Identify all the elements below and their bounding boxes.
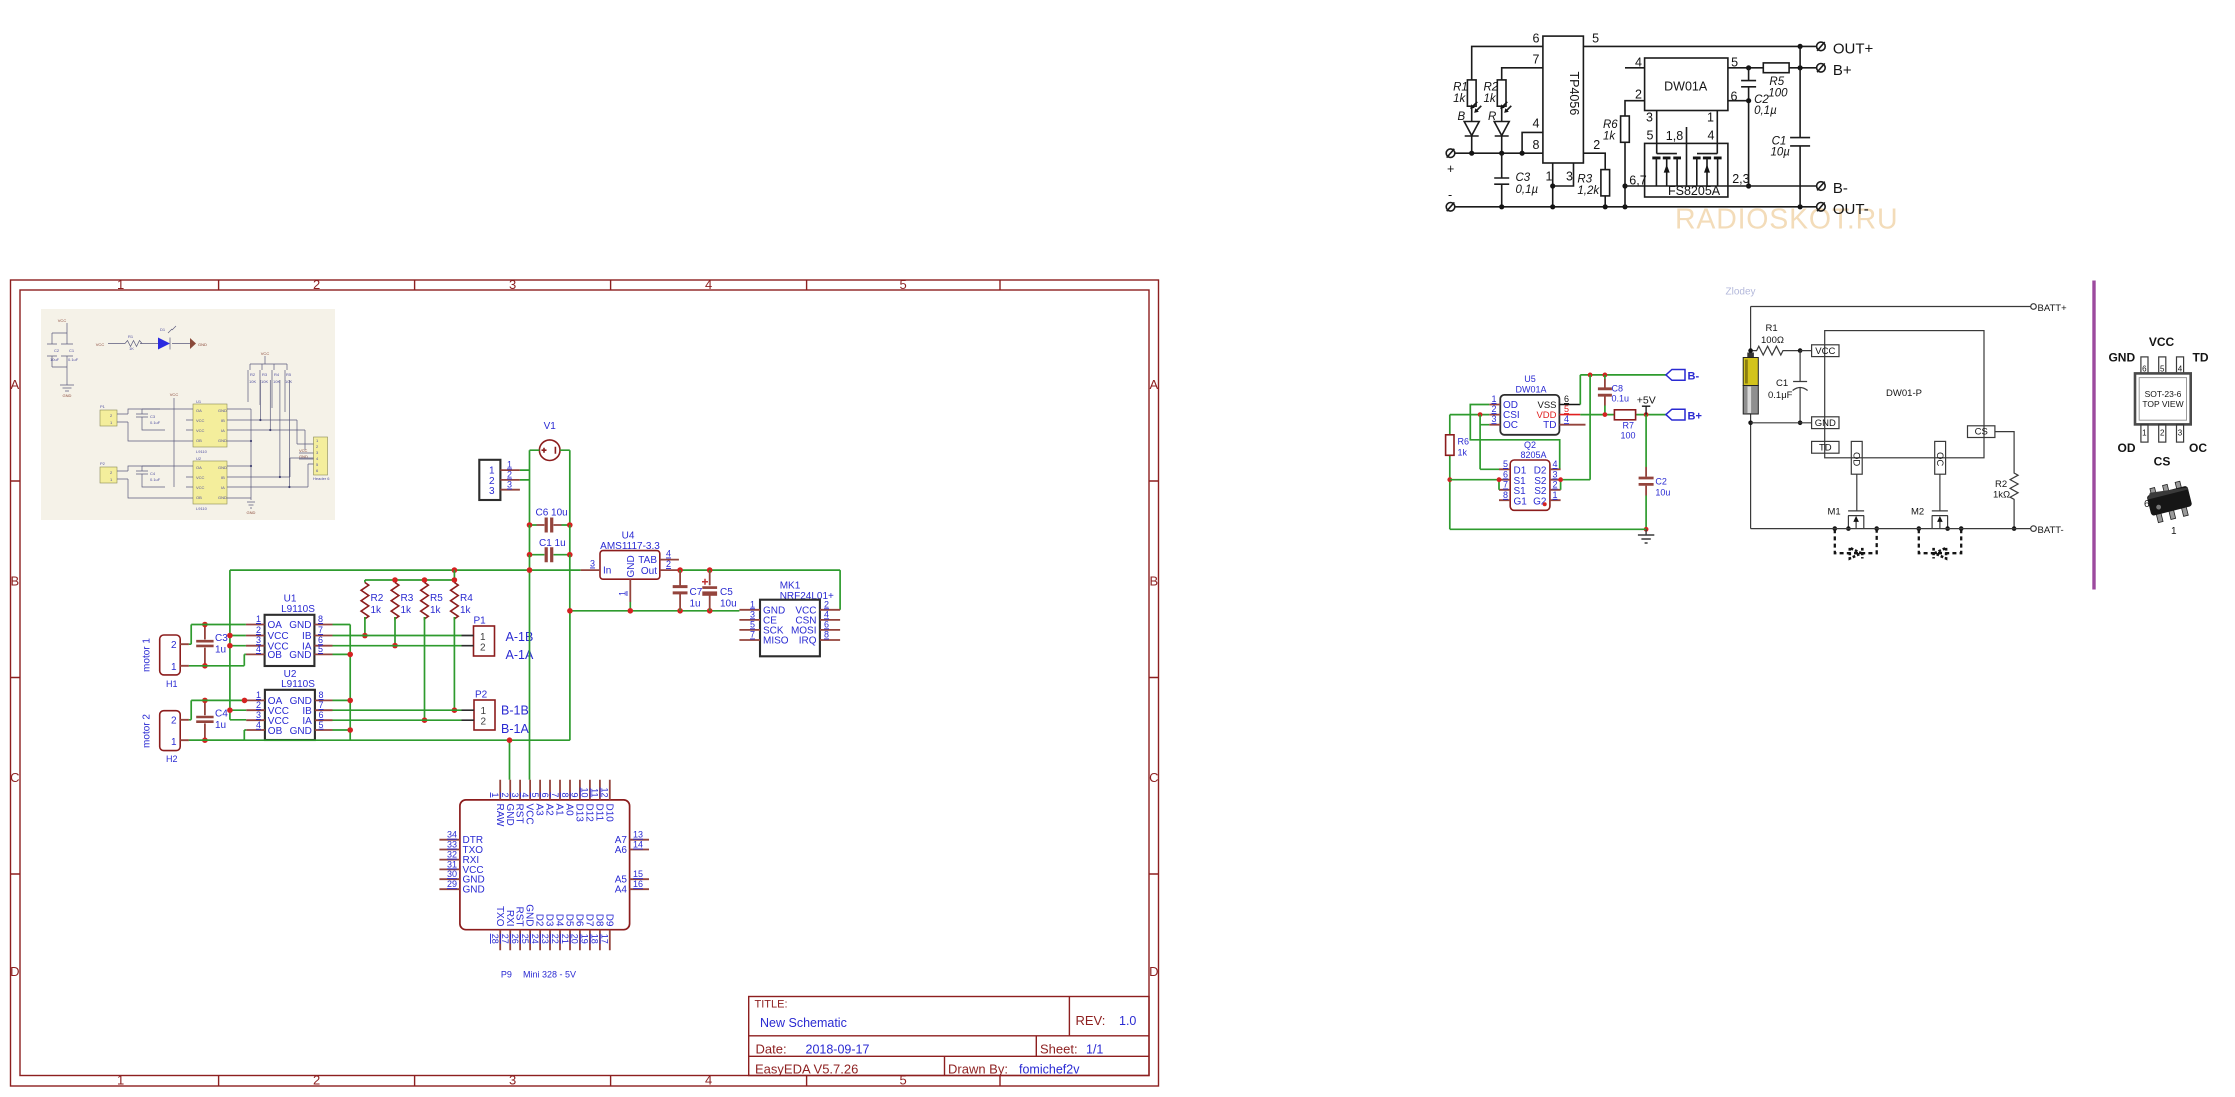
svg-text:+: + <box>1447 162 1454 176</box>
svg-text:U4: U4 <box>622 531 635 542</box>
svg-text:IA: IA <box>221 485 225 490</box>
svg-text:GND: GND <box>463 885 485 896</box>
svg-text:B: B <box>10 574 19 589</box>
svg-text:4: 4 <box>705 1073 712 1088</box>
svg-text:29: 29 <box>447 879 457 889</box>
svg-text:fomichef2v: fomichef2v <box>1019 1063 1080 1077</box>
svg-text:3: 3 <box>1491 414 1496 424</box>
svg-text:A3: A3 <box>534 804 545 817</box>
svg-text:5: 5 <box>1592 32 1599 46</box>
svg-text:1: 1 <box>256 614 261 624</box>
svg-text:6: 6 <box>319 710 324 720</box>
svg-text:1,8: 1,8 <box>1666 129 1683 143</box>
svg-text:RAW: RAW <box>494 804 505 828</box>
svg-text:20: 20 <box>570 934 580 944</box>
svg-text:BATT+: BATT+ <box>2038 303 2068 314</box>
svg-text:GND: GND <box>289 620 311 631</box>
svg-text:22: 22 <box>550 934 560 944</box>
svg-text:U2: U2 <box>196 456 202 461</box>
svg-text:A: A <box>10 377 19 392</box>
svg-text:R5: R5 <box>286 372 292 377</box>
svg-text:4: 4 <box>256 644 261 654</box>
svg-text:4: 4 <box>666 549 671 559</box>
svg-text:17: 17 <box>600 934 610 944</box>
svg-text:R3: R3 <box>262 372 268 377</box>
svg-text:New Schematic: New Schematic <box>760 1016 847 1030</box>
svg-text:3: 3 <box>509 277 516 292</box>
svg-text:1k: 1k <box>1453 93 1466 105</box>
svg-text:10: 10 <box>580 787 590 797</box>
svg-text:2: 2 <box>666 559 671 569</box>
svg-text:1,2k: 1,2k <box>1577 185 1600 197</box>
svg-text:OUT-: OUT- <box>1833 201 1869 218</box>
svg-text:A6: A6 <box>615 845 628 856</box>
svg-text:TAB: TAB <box>638 555 657 566</box>
svg-text:C6 10u: C6 10u <box>536 508 568 519</box>
svg-text:18: 18 <box>590 934 600 944</box>
svg-text:33: 33 <box>447 840 457 850</box>
svg-text:3: 3 <box>507 480 512 490</box>
svg-text:34: 34 <box>447 830 457 840</box>
svg-text:0.1u: 0.1u <box>1612 394 1630 404</box>
svg-text:CS: CS <box>1975 427 1988 438</box>
svg-text:Date:: Date: <box>756 1042 787 1057</box>
svg-text:5: 5 <box>319 720 324 730</box>
svg-text:100Ω: 100Ω <box>1761 335 1784 346</box>
svg-text:R4: R4 <box>460 593 473 604</box>
svg-text:RST: RST <box>514 804 525 824</box>
svg-text:VCC: VCC <box>2149 335 2175 349</box>
svg-text:C3: C3 <box>215 633 228 644</box>
svg-text:2: 2 <box>256 700 261 710</box>
svg-text:L9110S: L9110S <box>281 679 315 690</box>
svg-text:5: 5 <box>1647 128 1654 142</box>
svg-text:EasyEDA V5.7.26: EasyEDA V5.7.26 <box>755 1062 858 1077</box>
svg-text:P1: P1 <box>100 404 106 409</box>
svg-text:2018-09-17: 2018-09-17 <box>806 1043 870 1057</box>
svg-text:1k: 1k <box>1484 93 1497 105</box>
svg-text:C2: C2 <box>54 348 60 353</box>
svg-text:Q2: Q2 <box>1524 440 1536 450</box>
svg-text:1: 1 <box>117 1073 124 1088</box>
svg-text:REV:: REV: <box>1076 1013 1106 1028</box>
svg-text:D5: D5 <box>564 914 575 927</box>
svg-text:S2: S2 <box>1534 486 1547 497</box>
svg-text:VCC: VCC <box>58 318 67 323</box>
svg-text:D3: D3 <box>544 914 555 927</box>
svg-text:1/1: 1/1 <box>1086 1043 1103 1057</box>
svg-text:VCC: VCC <box>299 448 308 453</box>
svg-text:2,3: 2,3 <box>1732 172 1749 186</box>
svg-text:25: 25 <box>520 934 530 944</box>
svg-text:C1: C1 <box>1772 135 1787 147</box>
svg-text:C7: C7 <box>690 587 703 598</box>
svg-text:R3: R3 <box>1577 174 1592 186</box>
svg-text:2: 2 <box>507 470 512 480</box>
svg-text:6: 6 <box>540 792 550 797</box>
svg-text:TD: TD <box>1543 420 1556 431</box>
svg-text:2: 2 <box>1491 404 1496 414</box>
svg-text:3: 3 <box>750 609 755 619</box>
svg-text:GND: GND <box>218 465 227 470</box>
svg-text:D7: D7 <box>584 914 595 927</box>
svg-text:R5: R5 <box>1769 76 1784 88</box>
svg-text:OB: OB <box>196 495 202 500</box>
svg-text:R5: R5 <box>430 593 443 604</box>
svg-text:19: 19 <box>580 934 590 944</box>
svg-text:1: 1 <box>1553 490 1558 500</box>
svg-text:OD: OD <box>2118 441 2136 455</box>
svg-text:2: 2 <box>1635 88 1642 102</box>
svg-text:3: 3 <box>1646 111 1653 125</box>
svg-text:1k: 1k <box>371 605 383 616</box>
svg-text:D9: D9 <box>603 914 614 927</box>
svg-text:RXI: RXI <box>504 910 515 927</box>
svg-text:31: 31 <box>447 859 457 869</box>
svg-text:7: 7 <box>319 700 324 710</box>
svg-text:MISO: MISO <box>763 636 789 647</box>
svg-text:4: 4 <box>1564 414 1569 424</box>
svg-text:TD: TD <box>2193 351 2209 365</box>
svg-text:2: 2 <box>824 599 829 609</box>
svg-text:GND: GND <box>198 342 207 347</box>
svg-text:3: 3 <box>489 486 495 497</box>
svg-text:1kΩ: 1kΩ <box>1993 490 2010 501</box>
svg-text:R1: R1 <box>1766 323 1778 334</box>
svg-text:1k: 1k <box>1603 130 1616 142</box>
svg-text:10K: 10K <box>261 379 268 384</box>
svg-text:H2: H2 <box>166 754 178 764</box>
svg-text:VCC: VCC <box>196 428 205 433</box>
svg-text:A2: A2 <box>544 804 555 817</box>
svg-text:B: B <box>1458 111 1466 123</box>
svg-text:Sheet:: Sheet: <box>1040 1042 1078 1057</box>
svg-text:D11: D11 <box>594 804 605 822</box>
svg-text:4: 4 <box>520 792 530 797</box>
svg-text:C2: C2 <box>1655 477 1667 487</box>
svg-text:1: 1 <box>480 632 486 643</box>
svg-text:1: 1 <box>1491 394 1496 404</box>
svg-text:B+: B+ <box>1833 62 1852 79</box>
svg-text:D13: D13 <box>574 804 585 823</box>
svg-text:10uF: 10uF <box>50 357 60 362</box>
svg-text:13: 13 <box>633 830 643 840</box>
svg-text:L9110: L9110 <box>196 506 208 511</box>
svg-text:VCC: VCC <box>196 418 205 423</box>
svg-text:GND: GND <box>247 510 256 515</box>
svg-text:10K: 10K <box>273 379 280 384</box>
svg-text:GND: GND <box>524 904 535 926</box>
svg-text:1: 1 <box>171 662 177 673</box>
svg-text:V1: V1 <box>544 421 557 432</box>
svg-text:7: 7 <box>1533 53 1540 67</box>
svg-text:R7: R7 <box>1623 421 1635 431</box>
svg-text:30: 30 <box>447 869 457 879</box>
svg-text:24: 24 <box>530 934 540 944</box>
svg-text:C: C <box>1149 770 1158 785</box>
svg-text:1k: 1k <box>1458 448 1468 458</box>
svg-text:U5: U5 <box>1524 374 1536 384</box>
svg-text:A4: A4 <box>615 885 628 896</box>
svg-text:D10: D10 <box>603 804 614 823</box>
svg-text:C: C <box>10 770 19 785</box>
svg-text:H1: H1 <box>166 679 178 689</box>
svg-text:R4: R4 <box>274 372 280 377</box>
svg-text:B: B <box>1149 574 1158 589</box>
svg-text:C3: C3 <box>1516 172 1531 184</box>
svg-text:4: 4 <box>1635 56 1642 70</box>
svg-text:B-1A: B-1A <box>501 722 529 736</box>
svg-text:2: 2 <box>2160 429 2165 438</box>
svg-text:C5: C5 <box>720 587 733 598</box>
svg-text:BATT-: BATT- <box>2038 525 2064 536</box>
svg-text:TP4056: TP4056 <box>1567 72 1581 116</box>
svg-text:8: 8 <box>1503 490 1508 500</box>
svg-text:2: 2 <box>1553 480 1558 490</box>
svg-text:D: D <box>1149 964 1158 979</box>
svg-text:5: 5 <box>530 792 540 797</box>
svg-text:GND: GND <box>218 438 227 443</box>
svg-text:1: 1 <box>171 737 177 748</box>
svg-text:1: 1 <box>618 591 628 596</box>
svg-text:GND: GND <box>218 408 227 413</box>
svg-text:1: 1 <box>750 599 755 609</box>
svg-text:32: 32 <box>447 850 457 860</box>
svg-text:1: 1 <box>507 460 512 470</box>
svg-text:4: 4 <box>1708 128 1715 142</box>
svg-text:R1: R1 <box>1453 82 1468 94</box>
svg-text:6: 6 <box>1533 32 1540 46</box>
svg-text:21: 21 <box>560 934 570 944</box>
svg-text:Zlodey: Zlodey <box>1726 287 1756 298</box>
svg-text:IRQ: IRQ <box>799 636 817 647</box>
svg-text:motor 1: motor 1 <box>142 638 153 672</box>
svg-text:11: 11 <box>590 788 600 797</box>
svg-text:5: 5 <box>1564 404 1569 414</box>
svg-text:7: 7 <box>318 625 323 635</box>
svg-text:28: 28 <box>490 934 500 944</box>
svg-text:9: 9 <box>570 792 580 797</box>
svg-text:4: 4 <box>705 277 712 292</box>
svg-text:IB: IB <box>221 418 225 423</box>
svg-text:10u: 10u <box>1655 488 1670 498</box>
svg-text:R2: R2 <box>250 372 256 377</box>
svg-text:2: 2 <box>1593 138 1600 152</box>
svg-text:-: - <box>1448 188 1452 202</box>
svg-text:R6: R6 <box>1603 119 1618 131</box>
svg-text:C4: C4 <box>215 709 228 720</box>
svg-text:5: 5 <box>899 1073 906 1088</box>
svg-text:5: 5 <box>750 619 755 629</box>
svg-text:G1: G1 <box>1514 496 1528 507</box>
svg-text:6: 6 <box>1564 394 1569 404</box>
svg-text:D2: D2 <box>1534 466 1547 477</box>
svg-text:3: 3 <box>1566 170 1573 184</box>
svg-text:A0: A0 <box>564 804 575 817</box>
svg-text:GND: GND <box>504 804 515 826</box>
svg-text:1u: 1u <box>215 720 226 731</box>
svg-text:3: 3 <box>1553 469 1558 479</box>
svg-text:OB: OB <box>268 726 283 737</box>
svg-text:L9110S: L9110S <box>281 604 315 615</box>
svg-text:VCC: VCC <box>170 392 179 397</box>
svg-text:SOT-23-6: SOT-23-6 <box>2145 389 2182 399</box>
svg-text:1K: 1K <box>129 346 134 351</box>
svg-text:Out: Out <box>641 566 657 577</box>
svg-text:5: 5 <box>1503 459 1508 469</box>
svg-text:0,1µ: 0,1µ <box>1516 184 1539 196</box>
svg-text:R2: R2 <box>1995 479 2007 490</box>
svg-text:OA: OA <box>196 408 202 413</box>
svg-text:0.1uF: 0.1uF <box>150 477 161 482</box>
svg-text:DW01A: DW01A <box>1664 80 1708 94</box>
svg-text:R2: R2 <box>371 593 384 604</box>
svg-text:1: 1 <box>1707 111 1714 125</box>
svg-text:0.1μF: 0.1μF <box>1768 390 1793 401</box>
svg-text:5: 5 <box>899 277 906 292</box>
svg-text:1: 1 <box>1546 170 1553 184</box>
svg-text:7: 7 <box>750 630 755 640</box>
svg-text:Mini 328 - 5V: Mini 328 - 5V <box>523 970 576 980</box>
svg-text:8: 8 <box>560 792 570 797</box>
svg-text:IA: IA <box>221 428 225 433</box>
svg-text:OD: OD <box>1851 452 1862 466</box>
svg-text:0,1µ: 0,1µ <box>1754 105 1777 117</box>
svg-text:1u: 1u <box>215 645 226 656</box>
svg-text:B-: B- <box>1688 371 1700 383</box>
svg-text:D1: D1 <box>1514 466 1527 477</box>
svg-text:P2: P2 <box>475 690 488 701</box>
svg-text:6,7: 6,7 <box>1629 174 1646 188</box>
svg-text:U1: U1 <box>196 399 202 404</box>
svg-text:P9: P9 <box>501 970 512 980</box>
svg-text:3: 3 <box>590 559 595 569</box>
svg-text:3: 3 <box>2178 429 2183 438</box>
svg-text:8: 8 <box>824 630 829 640</box>
svg-text:R3: R3 <box>401 593 414 604</box>
svg-text:OA: OA <box>196 465 202 470</box>
svg-text:TOP VIEW: TOP VIEW <box>2142 399 2183 409</box>
svg-text:TXO: TXO <box>494 906 505 927</box>
svg-text:Drawn By:: Drawn By: <box>948 1062 1008 1077</box>
svg-text:B-1B: B-1B <box>501 704 529 718</box>
svg-text:OA: OA <box>268 620 283 631</box>
svg-text:OC: OC <box>1934 452 1945 466</box>
svg-text:R6: R6 <box>1458 437 1470 447</box>
svg-text:1: 1 <box>256 690 261 700</box>
svg-text:VCC: VCC <box>96 342 105 347</box>
svg-text:D8: D8 <box>594 914 605 927</box>
svg-text:+5V: +5V <box>1637 395 1656 407</box>
svg-text:A: A <box>1149 377 1158 392</box>
svg-text:3: 3 <box>510 792 520 797</box>
svg-text:OC: OC <box>2189 441 2207 455</box>
svg-text:8: 8 <box>318 614 323 624</box>
svg-text:D: D <box>10 964 19 979</box>
svg-text:1: 1 <box>2142 429 2147 438</box>
svg-text:GND: GND <box>218 495 227 500</box>
svg-text:D12: D12 <box>584 804 595 823</box>
svg-text:8: 8 <box>319 690 324 700</box>
svg-text:D6: D6 <box>574 914 585 927</box>
svg-text:L9110: L9110 <box>196 449 208 454</box>
svg-text:1k: 1k <box>460 605 472 616</box>
svg-text:26: 26 <box>510 934 520 944</box>
svg-text:1: 1 <box>490 792 500 797</box>
svg-text:B+: B+ <box>1688 410 1702 422</box>
svg-text:P1: P1 <box>474 616 487 627</box>
svg-text:C8: C8 <box>1612 384 1624 394</box>
svg-text:8205A: 8205A <box>1520 450 1546 460</box>
svg-text:10K: 10K <box>249 379 256 384</box>
svg-text:2: 2 <box>256 625 261 635</box>
svg-text:3: 3 <box>509 1073 516 1088</box>
svg-text:TD: TD <box>1819 442 1832 453</box>
svg-text:RST: RST <box>514 907 525 927</box>
svg-text:4: 4 <box>256 720 261 730</box>
svg-text:S1: S1 <box>1514 486 1527 497</box>
svg-text:10u: 10u <box>720 599 737 610</box>
svg-text:VCC: VCC <box>196 485 205 490</box>
svg-text:VCC: VCC <box>196 475 205 480</box>
svg-text:C3: C3 <box>150 414 156 419</box>
svg-text:C4: C4 <box>150 471 156 476</box>
svg-text:5: 5 <box>318 644 323 654</box>
svg-text:R: R <box>1488 111 1496 123</box>
svg-text:7: 7 <box>550 792 560 797</box>
svg-text:12: 12 <box>600 787 610 797</box>
svg-text:GND: GND <box>63 393 72 398</box>
svg-text:23: 23 <box>540 934 550 944</box>
svg-text:4: 4 <box>1533 117 1540 131</box>
svg-text:4: 4 <box>824 609 829 619</box>
svg-text:1: 1 <box>117 277 124 292</box>
svg-text:M1: M1 <box>1828 507 1841 518</box>
svg-text:0.1uF: 0.1uF <box>150 420 161 425</box>
svg-text:DW01-P: DW01-P <box>1886 388 1922 399</box>
svg-text:GND: GND <box>626 555 637 577</box>
svg-text:1k: 1k <box>430 605 442 616</box>
svg-text:2: 2 <box>480 642 486 653</box>
svg-text:C1: C1 <box>1776 378 1788 389</box>
svg-text:OB: OB <box>196 438 202 443</box>
svg-text:P2: P2 <box>100 461 106 466</box>
svg-text:15: 15 <box>633 869 643 879</box>
svg-text:4: 4 <box>1553 459 1558 469</box>
svg-text:2: 2 <box>500 792 510 797</box>
svg-text:OB: OB <box>268 650 283 661</box>
svg-text:1.0: 1.0 <box>1119 1014 1136 1028</box>
svg-text:VCC: VCC <box>524 804 535 825</box>
svg-text:GND: GND <box>289 650 311 661</box>
svg-text:C1: C1 <box>69 348 75 353</box>
svg-text:D2: D2 <box>534 914 545 927</box>
svg-text:B-: B- <box>1833 180 1848 197</box>
svg-text:GND: GND <box>2108 351 2135 365</box>
svg-text:GND: GND <box>1815 418 1836 429</box>
svg-text:VCC: VCC <box>1815 346 1835 357</box>
svg-text:1k: 1k <box>401 605 413 616</box>
svg-text:6: 6 <box>824 619 829 629</box>
svg-text:14: 14 <box>633 840 643 850</box>
svg-text:R2: R2 <box>1484 82 1499 94</box>
svg-text:0.1uF: 0.1uF <box>68 357 79 362</box>
svg-text:D4: D4 <box>554 914 565 927</box>
svg-text:2: 2 <box>313 277 320 292</box>
svg-text:8: 8 <box>1533 138 1540 152</box>
svg-text:motor 2: motor 2 <box>142 714 153 748</box>
svg-text:6: 6 <box>2144 499 2150 510</box>
